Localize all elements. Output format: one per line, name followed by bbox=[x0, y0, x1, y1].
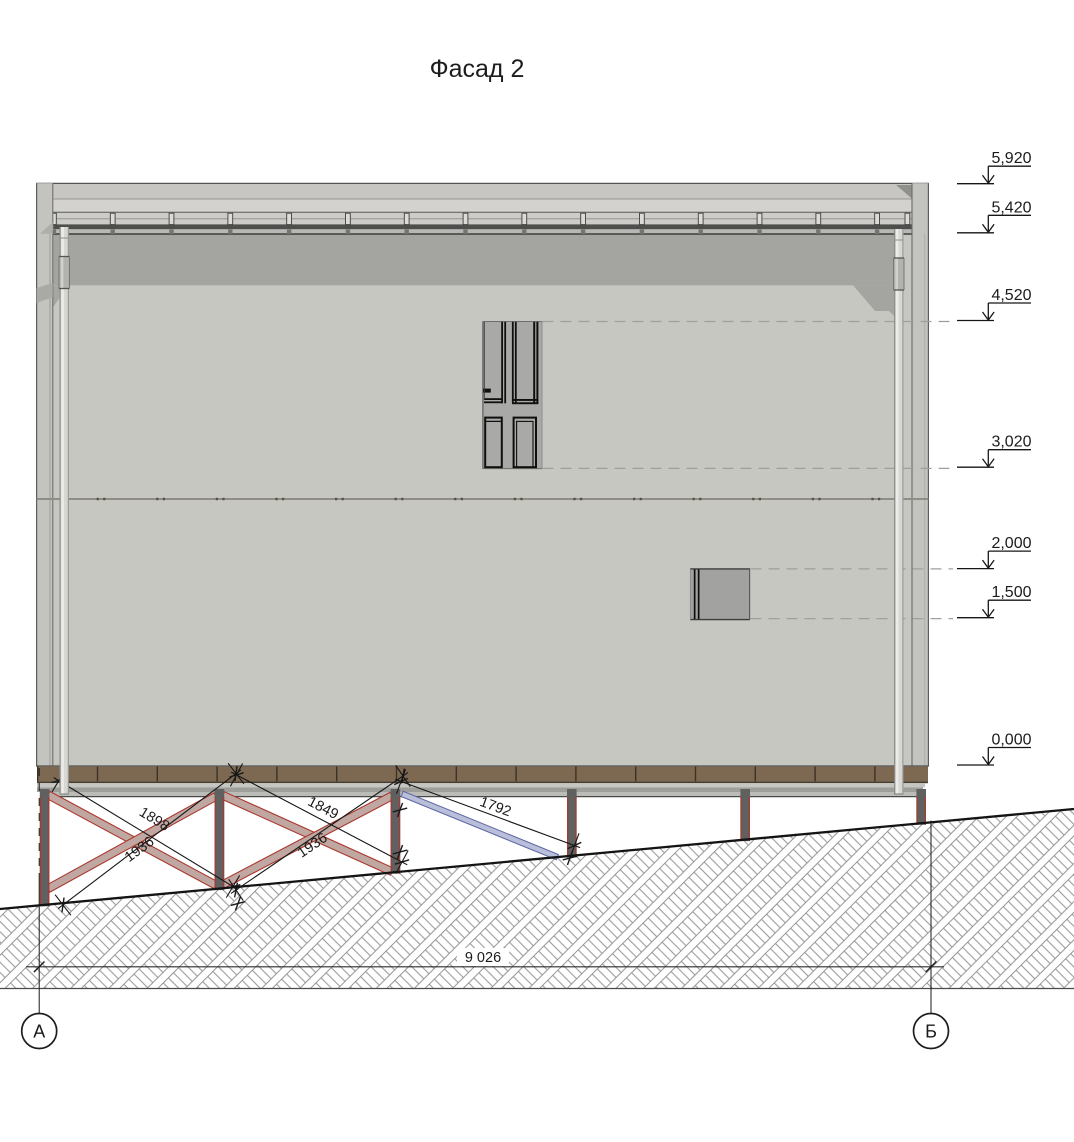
svg-text:1,500: 1,500 bbox=[991, 584, 1031, 601]
svg-text:А: А bbox=[33, 1022, 45, 1042]
svg-text:Б: Б bbox=[925, 1022, 937, 1042]
svg-text:1849: 1849 bbox=[305, 794, 341, 823]
svg-text:Фасад 2: Фасад 2 bbox=[430, 55, 525, 83]
svg-text:2,000: 2,000 bbox=[991, 535, 1031, 552]
svg-text:9 026: 9 026 bbox=[465, 950, 501, 966]
svg-text:5,920: 5,920 bbox=[991, 150, 1031, 167]
svg-text:3,020: 3,020 bbox=[991, 434, 1031, 451]
svg-text:0,000: 0,000 bbox=[991, 732, 1031, 749]
svg-text:5,420: 5,420 bbox=[991, 199, 1031, 216]
svg-text:4,520: 4,520 bbox=[991, 287, 1031, 304]
